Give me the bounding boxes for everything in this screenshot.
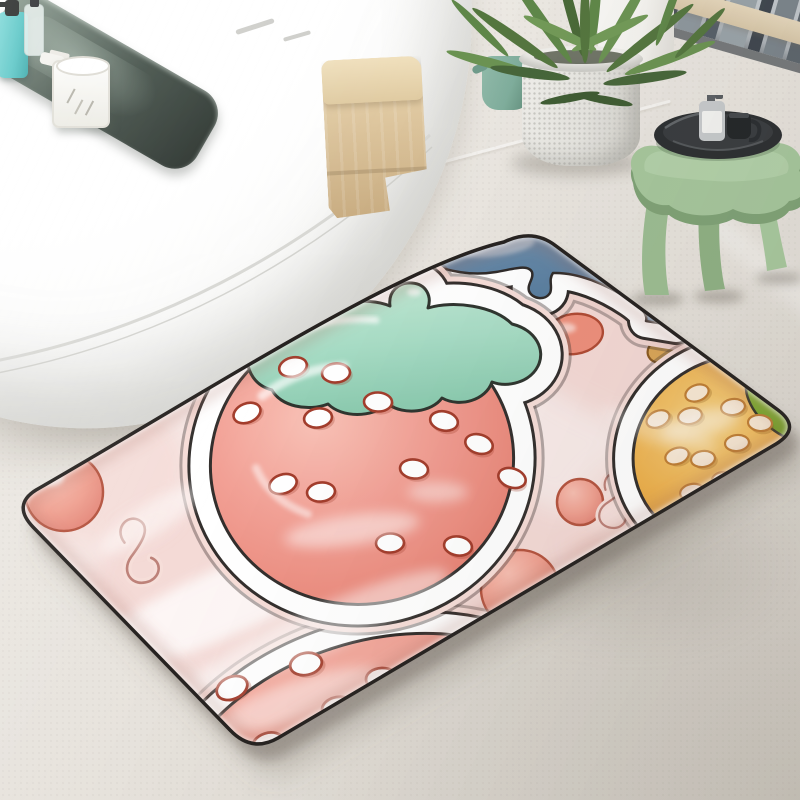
- bath-mat: [0, 0, 800, 800]
- strawberry-large: [184, 283, 541, 633]
- bathroom-scene: [0, 0, 800, 800]
